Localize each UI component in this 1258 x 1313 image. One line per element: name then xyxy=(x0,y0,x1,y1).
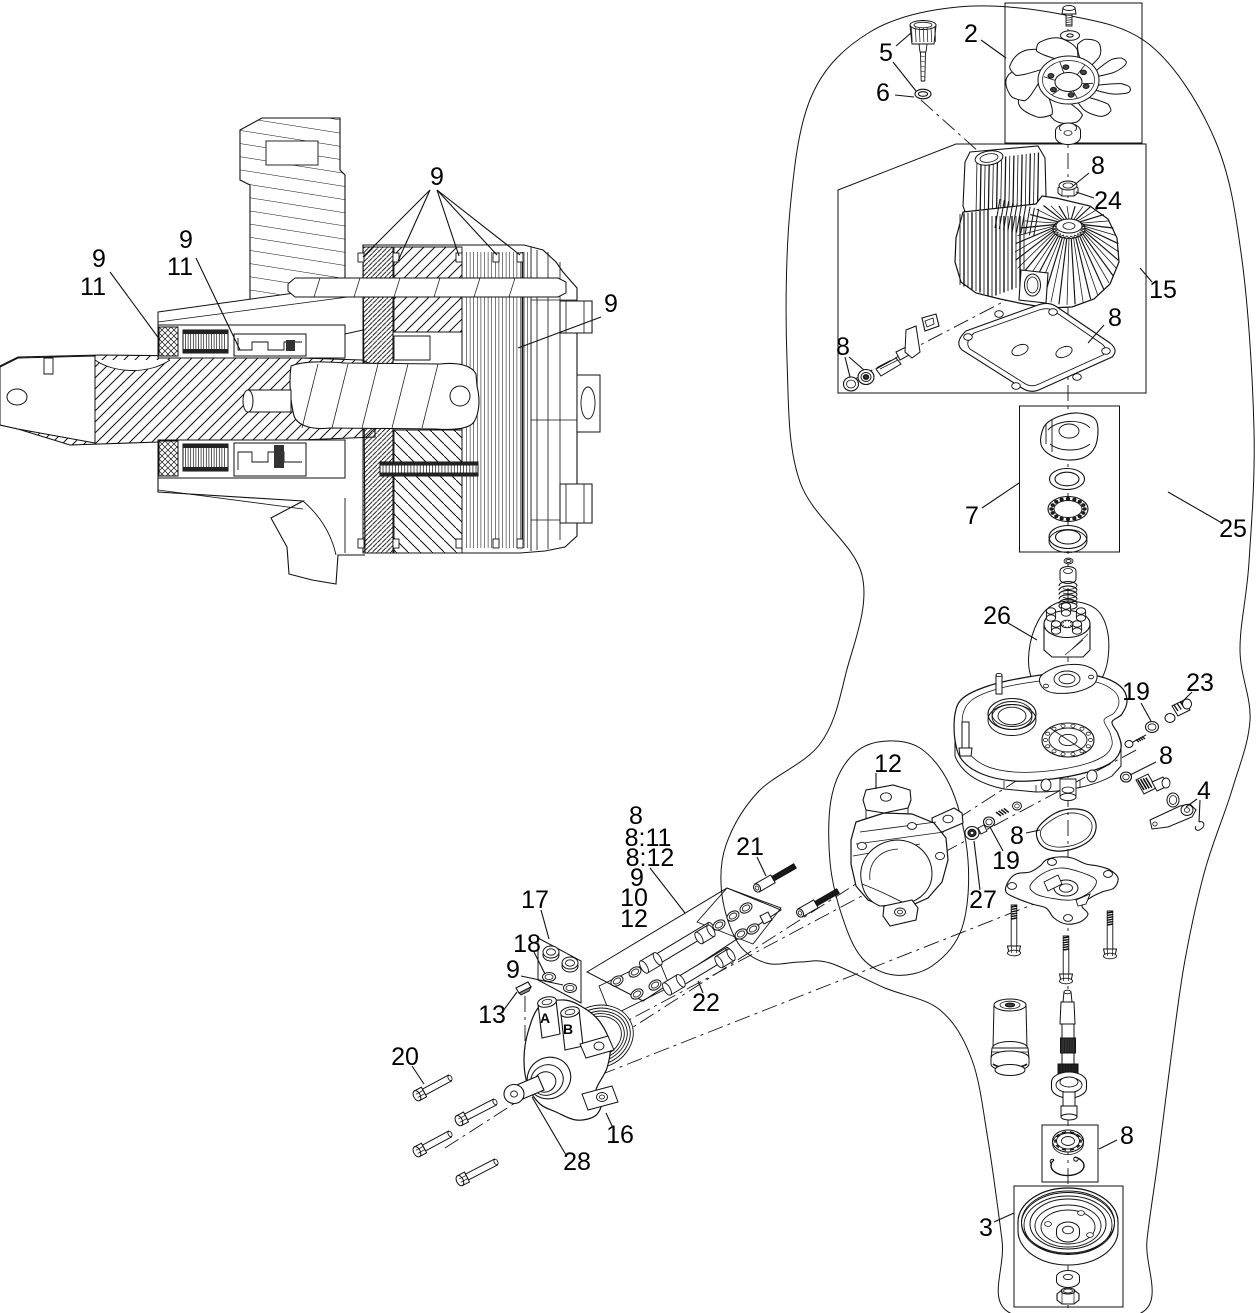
svg-text:B: B xyxy=(563,1021,573,1037)
svg-text:17: 17 xyxy=(521,886,549,914)
svg-text:8: 8 xyxy=(1108,304,1122,332)
svg-text:25: 25 xyxy=(1219,515,1247,543)
svg-text:8: 8 xyxy=(1091,152,1105,180)
svg-text:27: 27 xyxy=(969,886,997,914)
svg-text:24: 24 xyxy=(1094,187,1122,215)
svg-text:15: 15 xyxy=(1149,276,1177,304)
svg-text:12: 12 xyxy=(620,905,648,933)
svg-text:4: 4 xyxy=(1197,777,1211,805)
svg-text:8: 8 xyxy=(1120,1122,1134,1150)
svg-text:23: 23 xyxy=(1186,669,1214,697)
svg-text:6: 6 xyxy=(876,79,890,107)
svg-text:8: 8 xyxy=(836,333,850,361)
svg-text:21: 21 xyxy=(736,833,764,861)
svg-text:9: 9 xyxy=(179,226,193,254)
svg-text:8: 8 xyxy=(1010,822,1024,850)
svg-text:8: 8 xyxy=(1159,742,1173,770)
svg-text:9: 9 xyxy=(92,245,106,273)
svg-text:12: 12 xyxy=(874,750,902,778)
svg-text:26: 26 xyxy=(983,602,1011,630)
svg-text:16: 16 xyxy=(606,1121,634,1149)
svg-text:9: 9 xyxy=(430,163,444,191)
svg-text:7: 7 xyxy=(965,502,979,530)
svg-text:5: 5 xyxy=(879,39,893,67)
svg-text:2: 2 xyxy=(964,20,978,48)
svg-text:28: 28 xyxy=(563,1148,591,1176)
svg-text:9: 9 xyxy=(506,956,520,984)
svg-text:19: 19 xyxy=(1122,678,1150,706)
svg-text:20: 20 xyxy=(391,1043,419,1071)
svg-text:A: A xyxy=(540,1010,550,1026)
svg-text:11: 11 xyxy=(167,253,193,281)
svg-text:19: 19 xyxy=(992,847,1020,875)
svg-text:9: 9 xyxy=(604,290,618,318)
svg-text:18: 18 xyxy=(513,930,541,958)
svg-text:3: 3 xyxy=(979,1214,993,1242)
svg-text:11: 11 xyxy=(80,273,106,301)
svg-text:22: 22 xyxy=(692,989,720,1017)
svg-text:13: 13 xyxy=(478,1001,506,1029)
